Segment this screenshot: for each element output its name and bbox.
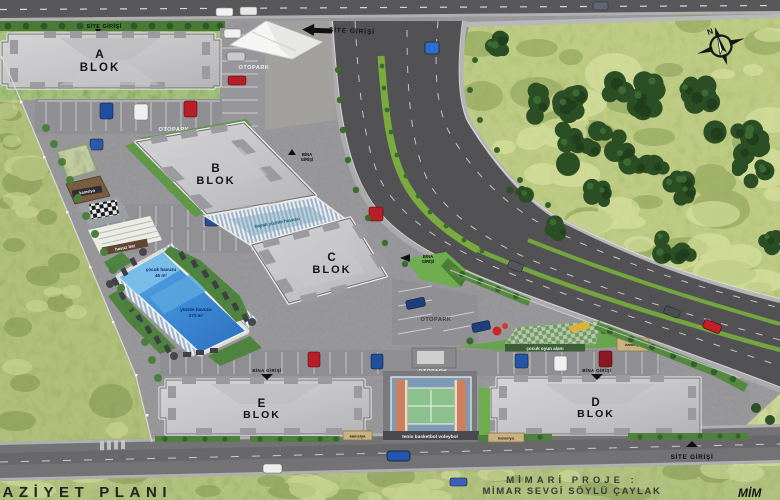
svg-text:GİRİŞİ: GİRİŞİ bbox=[422, 259, 435, 264]
svg-text:MİMAR SEVGİ SÖYLÜ ÇAYLAK: MİMAR SEVGİ SÖYLÜ ÇAYLAK bbox=[483, 486, 662, 497]
svg-text:MİM: MİM bbox=[738, 485, 762, 500]
svg-text:OTOPARK: OTOPARK bbox=[421, 317, 452, 323]
svg-text:B: B bbox=[211, 163, 220, 175]
svg-text:BLOK: BLOK bbox=[80, 62, 121, 74]
svg-text:GİRİŞİ: GİRİŞİ bbox=[301, 157, 314, 162]
svg-text:VAZİYET PLANI: VAZİYET PLANI bbox=[0, 484, 172, 500]
svg-text:BİNA GİRİŞİ: BİNA GİRİŞİ bbox=[582, 368, 611, 373]
svg-text:SİTE GİRİŞİ: SİTE GİRİŞİ bbox=[86, 23, 121, 30]
svg-text:273 m²: 273 m² bbox=[189, 313, 204, 318]
svg-text:BLOK: BLOK bbox=[196, 175, 235, 187]
svg-text:çocuk havuzu: çocuk havuzu bbox=[146, 267, 177, 272]
svg-text:OTOPARK: OTOPARK bbox=[239, 65, 270, 71]
svg-text:MİMARİ PROJE :: MİMARİ PROJE : bbox=[506, 475, 637, 486]
svg-text:C: C bbox=[327, 252, 336, 264]
svg-text:BLOK: BLOK bbox=[312, 264, 351, 276]
svg-text:kamelya: kamelya bbox=[498, 436, 515, 441]
svg-text:çocuk oyun alanı: çocuk oyun alanı bbox=[526, 346, 563, 351]
svg-text:45 m²: 45 m² bbox=[155, 273, 167, 278]
svg-text:BİNA GİRİŞİ: BİNA GİRİŞİ bbox=[252, 368, 281, 373]
svg-text:BLOK: BLOK bbox=[243, 409, 281, 421]
svg-text:tenis basketbol voleybol: tenis basketbol voleybol bbox=[402, 434, 458, 440]
svg-text:kamelya: kamelya bbox=[350, 434, 367, 439]
svg-text:BLOK: BLOK bbox=[577, 408, 615, 420]
svg-text:yüzme havuzu: yüzme havuzu bbox=[180, 307, 212, 312]
svg-text:A: A bbox=[95, 47, 105, 61]
svg-text:SİTE GİRİŞİ: SİTE GİRİŞİ bbox=[671, 452, 714, 461]
